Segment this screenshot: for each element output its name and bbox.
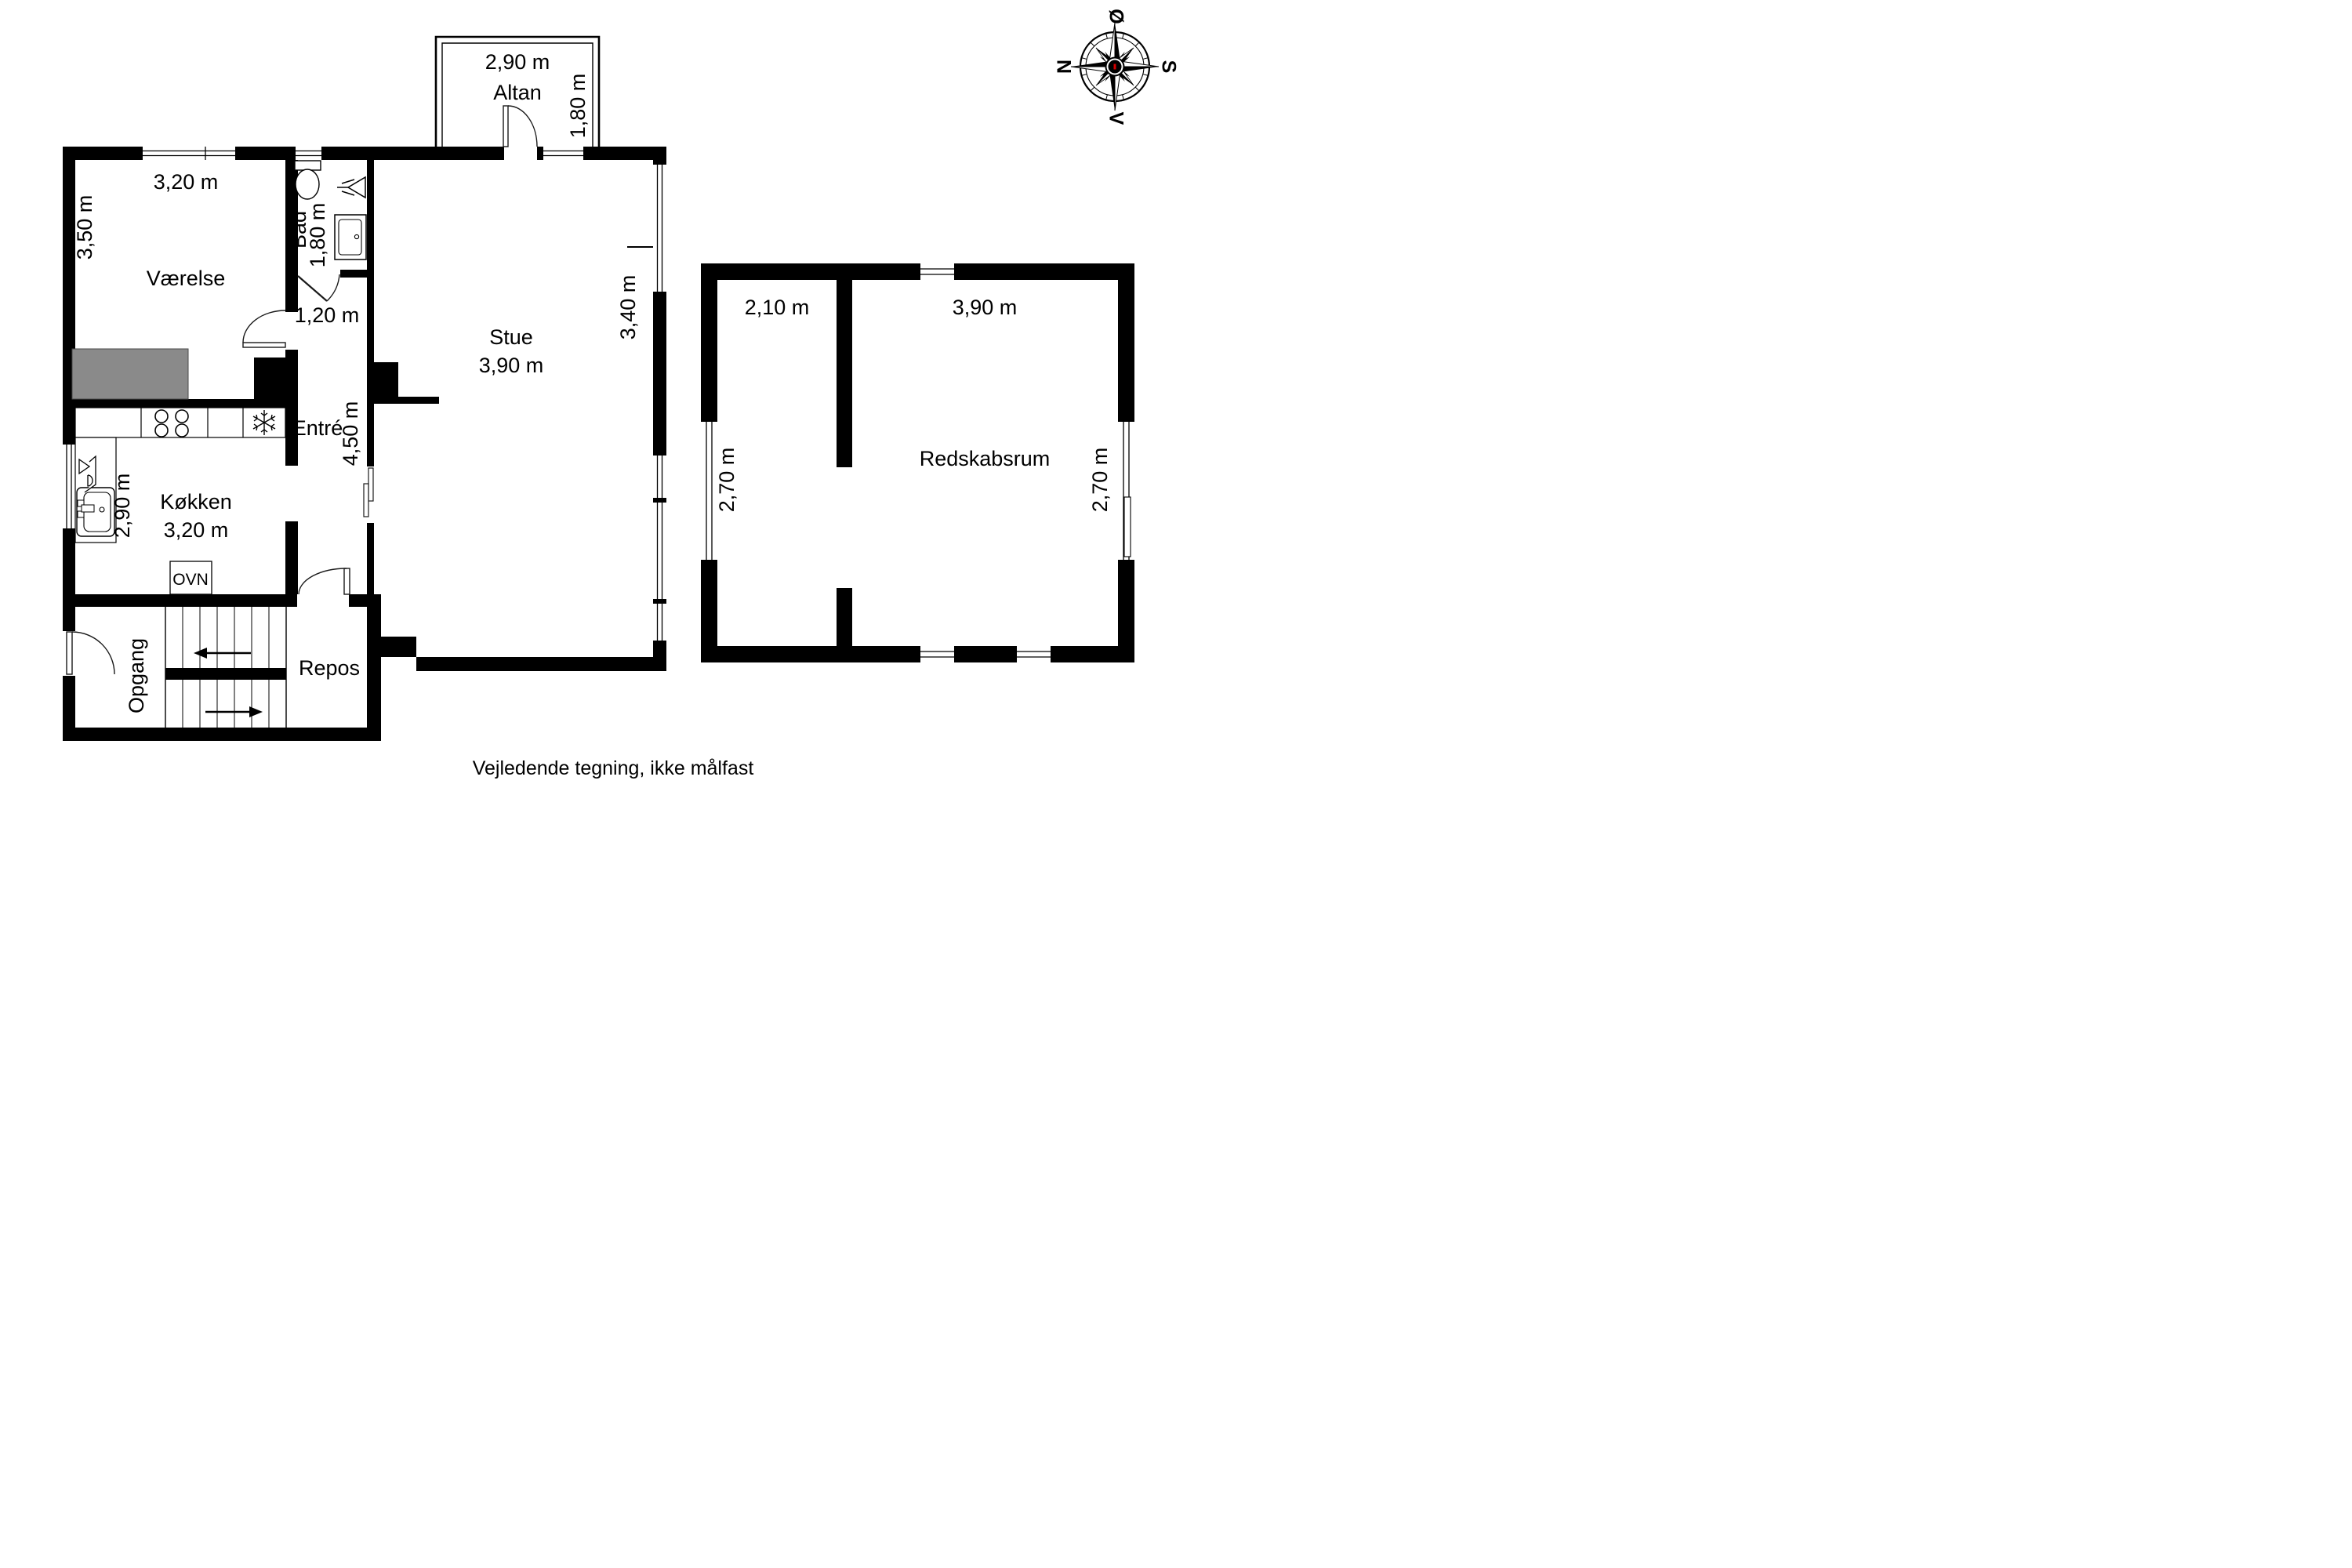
vaerelse-width-label: 3,20 m [154, 170, 219, 194]
altan-depth-label: 1,80 m [566, 74, 590, 139]
outbuilding-right-width-label: 3,90 m [953, 296, 1018, 319]
entre-length-label: 4,50 m [339, 401, 362, 466]
window-stue-top [543, 147, 583, 160]
window-outbuilding-bottom-1 [920, 646, 954, 662]
window-stue-right-3 [653, 503, 666, 599]
window-outbuilding-bottom-2 [1017, 646, 1051, 662]
compass-east-label: Ø [1105, 9, 1127, 24]
kitchen-width-label: 3,20 m [164, 518, 229, 542]
oven-box: OVN [170, 561, 212, 594]
door-altan [503, 106, 537, 147]
stair-landing [165, 668, 286, 680]
room-label-stue: Stue [489, 325, 533, 349]
compass-west-label: V [1105, 112, 1127, 125]
wardrobe-furniture [72, 349, 188, 399]
door-bad [298, 274, 339, 301]
bad-door-width-label: 1,20 m [295, 303, 360, 327]
altan-door-gap [504, 147, 537, 160]
bad-depth-label: 1,80 m [306, 203, 329, 268]
outbuilding-walls [701, 263, 1134, 662]
window-stue-right-4 [653, 604, 666, 641]
outbuilding-left-height-label: 2,70 m [715, 448, 739, 513]
disclaimer-text: Vejledende tegning, ikke målfast [473, 757, 754, 779]
staircase [165, 607, 286, 728]
compass-north-label: N [1052, 60, 1074, 74]
window-stue-right-1 [653, 165, 666, 292]
room-label-altan: Altan [493, 81, 542, 104]
floorplan-page: OVN [0, 0, 1215, 811]
stue-height-label: 3,40 m [616, 275, 640, 340]
room-label-entre: Entré [292, 416, 343, 440]
room-label-repos: Repos [299, 656, 360, 680]
altan-width-label: 2,90 m [485, 50, 550, 74]
compass-rose: Ø N S V [1052, 9, 1179, 125]
floorplan-drawing: OVN [0, 0, 1215, 811]
shower-icon [337, 177, 365, 198]
door-vaerelse [243, 310, 285, 347]
outbuilding [701, 263, 1134, 662]
vaerelse-height-label: 3,50 m [73, 195, 96, 260]
outbuilding-windows [701, 263, 1134, 662]
kitchen-height-label: 2,90 m [111, 474, 134, 539]
window-bad [296, 147, 321, 160]
toilet-icon [295, 161, 321, 199]
stair-arrow-up [194, 648, 251, 659]
bathroom-sink-icon [335, 215, 366, 260]
outbuilding-right-height-label: 2,70 m [1088, 448, 1112, 513]
room-label-redskabsrum: Redskabsrum [920, 447, 1051, 470]
stue-width-label: 3,90 m [479, 354, 544, 377]
window-outbuilding-right [1118, 422, 1134, 560]
door-repos-entre [299, 568, 350, 594]
room-label-kitchen: Køkken [160, 490, 232, 514]
oven-label: OVN [172, 571, 209, 589]
compass-center-logo [1105, 57, 1125, 77]
room-label-opgang: Opgang [125, 638, 148, 713]
window-vaerelse [143, 147, 235, 160]
compass-south-label: S [1157, 60, 1179, 74]
room-label-vaerelse: Værelse [147, 267, 226, 290]
window-stue-right-2 [653, 456, 666, 498]
outbuilding-left-width-label: 2,10 m [745, 296, 810, 319]
window-kitchen [63, 445, 75, 528]
window-outbuilding-top [920, 263, 954, 280]
